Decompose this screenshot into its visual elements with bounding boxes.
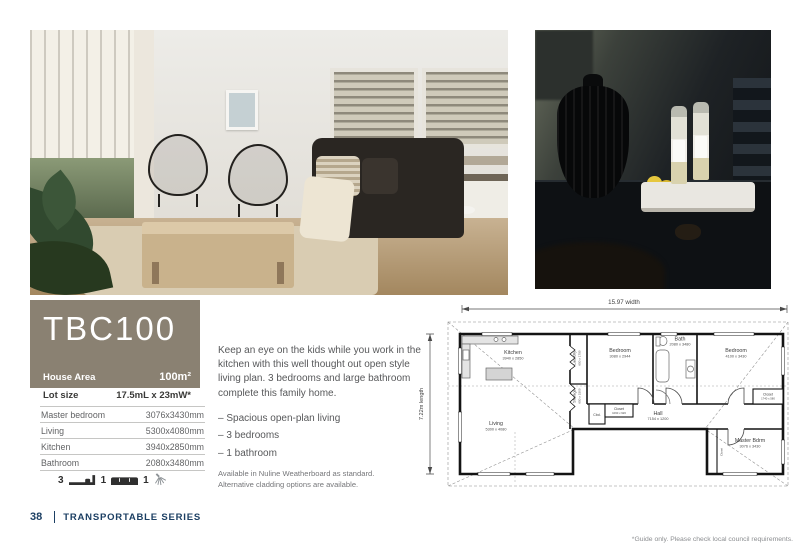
wall-art <box>226 90 258 130</box>
spec-row: Living 5300x4080mm <box>40 423 205 439</box>
spec-label: Master bedroom <box>41 410 105 420</box>
brochure-page: TBC100 House Area 100m² Lot size 17.5mL … <box>0 0 800 554</box>
drink-bottle <box>693 102 709 180</box>
room-label-kitchen: Kitchen <box>504 350 522 356</box>
model-title-box: TBC100 House Area 100m² <box>30 300 200 388</box>
living-count: 1 <box>101 475 107 486</box>
house-area-row: House Area 100m² <box>43 371 191 383</box>
bottle-label <box>673 140 685 162</box>
wire-chair <box>228 144 288 206</box>
spec-label: Kitchen <box>41 442 70 452</box>
series-title: TRANSPORTABLE SERIES <box>63 512 201 523</box>
room-label-master: Master Bdrm <box>735 438 766 444</box>
sofa-icon <box>111 474 138 487</box>
kitchen-window-blinds <box>330 68 418 148</box>
room-label-closet-master: Closet <box>720 448 724 456</box>
room-dims-bath: 2080 x 3480 <box>670 343 691 347</box>
feature-bullet: – 3 bedrooms <box>218 430 432 441</box>
room-dims-storage: 650 x 1500 <box>578 388 582 404</box>
description-paragraph: Keep an eye on the kids while you work i… <box>218 344 432 401</box>
chair-legs <box>238 204 278 217</box>
model-name: TBC100 <box>43 310 176 348</box>
room-label-storage: Storage <box>572 389 577 403</box>
photo-living-room <box>30 30 508 295</box>
floor-plan: 15.97 width 7.22m length <box>414 292 798 534</box>
spec-table: Master bedroom 3076x3430mm Living 5300x4… <box>40 406 205 471</box>
room-dims-hall: 7154 x 1200 <box>648 417 669 421</box>
room-dims-bedroom2: 3080 x 2944 <box>610 355 631 359</box>
spec-label: Bathroom <box>41 458 79 468</box>
room-dims-bedroom3: 4100 x 3430 <box>726 355 747 359</box>
description-block: Keep an eye on the kids while you work i… <box>218 344 432 491</box>
room-label-laundry: Laundry <box>572 351 577 365</box>
white-tray <box>641 182 755 212</box>
spec-row: Master bedroom 3076x3430mm <box>40 407 205 423</box>
dark-cushion <box>362 158 398 194</box>
room-label-cbd: Cbd. <box>593 413 600 417</box>
cladding-note-line2: Alternative cladding options are availab… <box>218 479 432 490</box>
spec-label: Living <box>41 426 64 436</box>
bathroom-count: 1 <box>143 475 149 486</box>
spec-row: Bathroom 2080x3480mm <box>40 455 205 471</box>
room-dims-living: 5300 x 4080 <box>486 428 507 432</box>
room-label-living: Living <box>489 421 503 427</box>
bedroom-count: 3 <box>58 475 64 486</box>
feature-bullet: – 1 bathroom <box>218 448 432 459</box>
bed-icon <box>69 474 96 487</box>
coffee-table <box>142 222 294 288</box>
kitchen-window-blinds <box>422 68 508 148</box>
shower-icon <box>154 473 169 488</box>
chair-legs <box>158 194 198 207</box>
cladding-note: Available in Nuline Weatherboard as stan… <box>218 468 432 491</box>
room-label-bedroom3: Bedroom <box>725 348 747 354</box>
feature-bullet: – Spacious open-plan living <box>218 413 432 424</box>
table-leg <box>152 262 159 284</box>
bottle-label <box>695 136 707 158</box>
pinecone <box>675 224 701 240</box>
room-label-bedroom2: Bedroom <box>609 348 631 354</box>
spec-value: 5300x4080mm <box>146 426 204 436</box>
disclaimer-note: *Guide only. Please check local council … <box>632 536 793 543</box>
spec-value: 3940x2850mm <box>146 442 204 452</box>
plan-width-dimension: 15.97 width <box>608 299 640 306</box>
house-area-value: 100m² <box>159 371 191 383</box>
cage-lantern <box>557 86 629 198</box>
feature-icons-row: 3 1 1 <box>58 473 169 488</box>
room-dims-laundry: 650 x 1750 <box>578 350 582 366</box>
spec-value: 2080x3480mm <box>146 458 204 468</box>
wire-chair <box>148 134 208 196</box>
feature-bullets: – Spacious open-plan living – 3 bedrooms… <box>218 413 432 459</box>
page-number: 38 <box>30 511 42 523</box>
room-dims-master: 3076 x 3430 <box>740 445 761 449</box>
photo-outdoor-detail <box>535 30 771 289</box>
lot-size-label: Lot size <box>43 390 78 401</box>
room-dims-closet-hall: 1060 x 926 <box>612 411 626 415</box>
lot-size-value: 17.5mL x 23mW* <box>116 390 191 401</box>
table-leg <box>277 262 284 284</box>
throw-blanket <box>299 176 355 243</box>
plan-length-dimension: 7.22m length <box>419 388 425 420</box>
spec-row: Kitchen 3940x2850mm <box>40 439 205 455</box>
curtain <box>134 30 154 228</box>
spec-value: 3076x3430mm <box>146 410 204 420</box>
room-dims-kitchen: 3940 x 2850 <box>503 357 524 361</box>
page-footer: 38 TRANSPORTABLE SERIES <box>30 511 201 523</box>
dimension-lines <box>426 305 787 474</box>
house-area-label: House Area <box>43 372 95 383</box>
room-dims-closet-bed3: 1740 x 580 <box>761 397 775 401</box>
drink-bottle <box>671 106 687 184</box>
cladding-note-line1: Available in Nuline Weatherboard as stan… <box>218 468 432 479</box>
lot-size-row: Lot size 17.5mL x 23mW* <box>30 388 200 403</box>
footer-divider <box>54 511 55 523</box>
